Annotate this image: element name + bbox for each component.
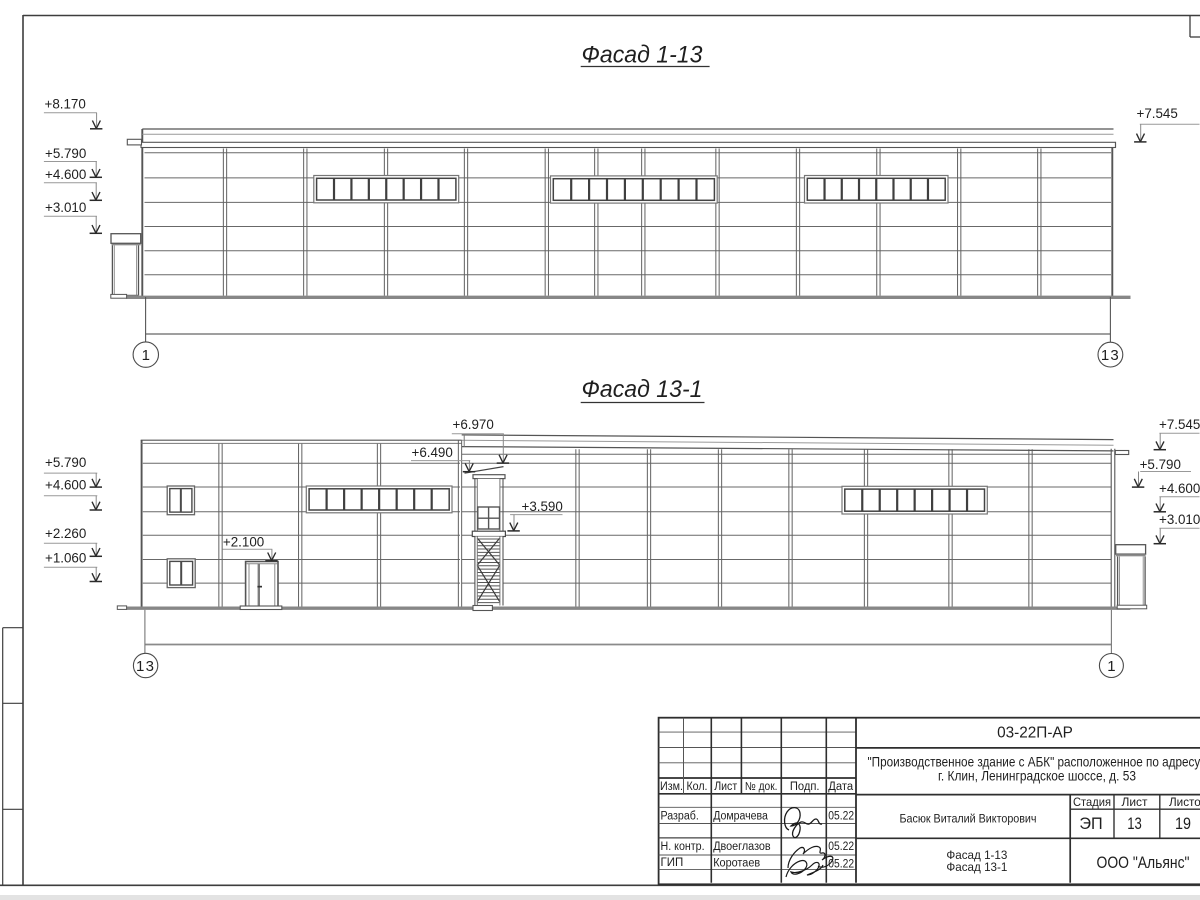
svg-text:+7.545: +7.545 [1137, 106, 1178, 121]
svg-text:+6.490: +6.490 [412, 445, 453, 460]
svg-text:ЭП: ЭП [1079, 814, 1102, 833]
svg-text:Подп.: Подп. [790, 781, 820, 793]
svg-text:Лист: Лист [714, 781, 738, 793]
svg-text:+8.170: +8.170 [45, 96, 86, 111]
svg-text:19: 19 [1175, 814, 1191, 833]
svg-text:Коротаев: Коротаев [713, 857, 760, 869]
svg-text:1: 1 [1107, 658, 1115, 675]
svg-text:Листов: Листов [1169, 795, 1200, 809]
svg-text:13: 13 [136, 658, 155, 675]
svg-text:Дата: Дата [828, 781, 853, 793]
svg-text:г. Клин, Ленинградское шоссе,: г. Клин, Ленинградское шоссе, д. 53 [938, 769, 1136, 784]
svg-text:+5.790: +5.790 [1140, 457, 1181, 472]
svg-text:+2.260: +2.260 [45, 526, 86, 541]
svg-text:Фасад 1-13: Фасад 1-13 [582, 42, 703, 69]
svg-text:05.22: 05.22 [828, 841, 854, 853]
svg-text:13: 13 [1101, 347, 1120, 364]
svg-text:Фасад 13-1: Фасад 13-1 [582, 376, 703, 403]
svg-text:+5.790: +5.790 [45, 146, 86, 161]
svg-text:+7.545: +7.545 [1159, 417, 1200, 432]
svg-text:Изм.: Изм. [660, 781, 683, 793]
svg-text:1: 1 [142, 347, 150, 364]
svg-text:Фасад 13-1: Фасад 13-1 [946, 860, 1007, 874]
svg-text:Двоеглазов: Двоеглазов [713, 841, 771, 853]
svg-text:Домрачева: Домрачева [713, 811, 768, 823]
svg-text:ГИП: ГИП [661, 857, 684, 869]
svg-text:+1.060: +1.060 [45, 550, 86, 565]
svg-text:03-22П-АР: 03-22П-АР [997, 725, 1073, 742]
svg-text:"Производственное здание с АБК: "Производственное здание с АБК" располож… [868, 755, 1200, 770]
svg-text:Кол.: Кол. [687, 781, 708, 793]
svg-text:+3.590: +3.590 [522, 499, 563, 514]
svg-text:+2.100: +2.100 [223, 535, 264, 550]
svg-text:05.22: 05.22 [828, 810, 854, 822]
svg-text:ООО "Альянс": ООО "Альянс" [1097, 854, 1190, 872]
svg-text:+4.600: +4.600 [45, 167, 86, 182]
svg-text:Разраб.: Разраб. [661, 810, 699, 822]
svg-text:+5.790: +5.790 [45, 455, 86, 470]
svg-text:№ док.: № док. [745, 781, 778, 793]
svg-text:13: 13 [1127, 814, 1142, 833]
svg-text:+3.010: +3.010 [1159, 512, 1200, 527]
svg-text:+4.600: +4.600 [1159, 481, 1200, 496]
svg-text:+6.970: +6.970 [453, 417, 494, 432]
svg-text:Басюк Виталий Викторович: Басюк Виталий Викторович [900, 812, 1037, 826]
svg-text:Н. контр.: Н. контр. [661, 841, 705, 853]
svg-text:Стадия: Стадия [1073, 795, 1111, 809]
svg-text:+3.010: +3.010 [45, 200, 86, 215]
svg-text:Лист: Лист [1122, 795, 1149, 809]
svg-text:+4.600: +4.600 [45, 478, 86, 493]
